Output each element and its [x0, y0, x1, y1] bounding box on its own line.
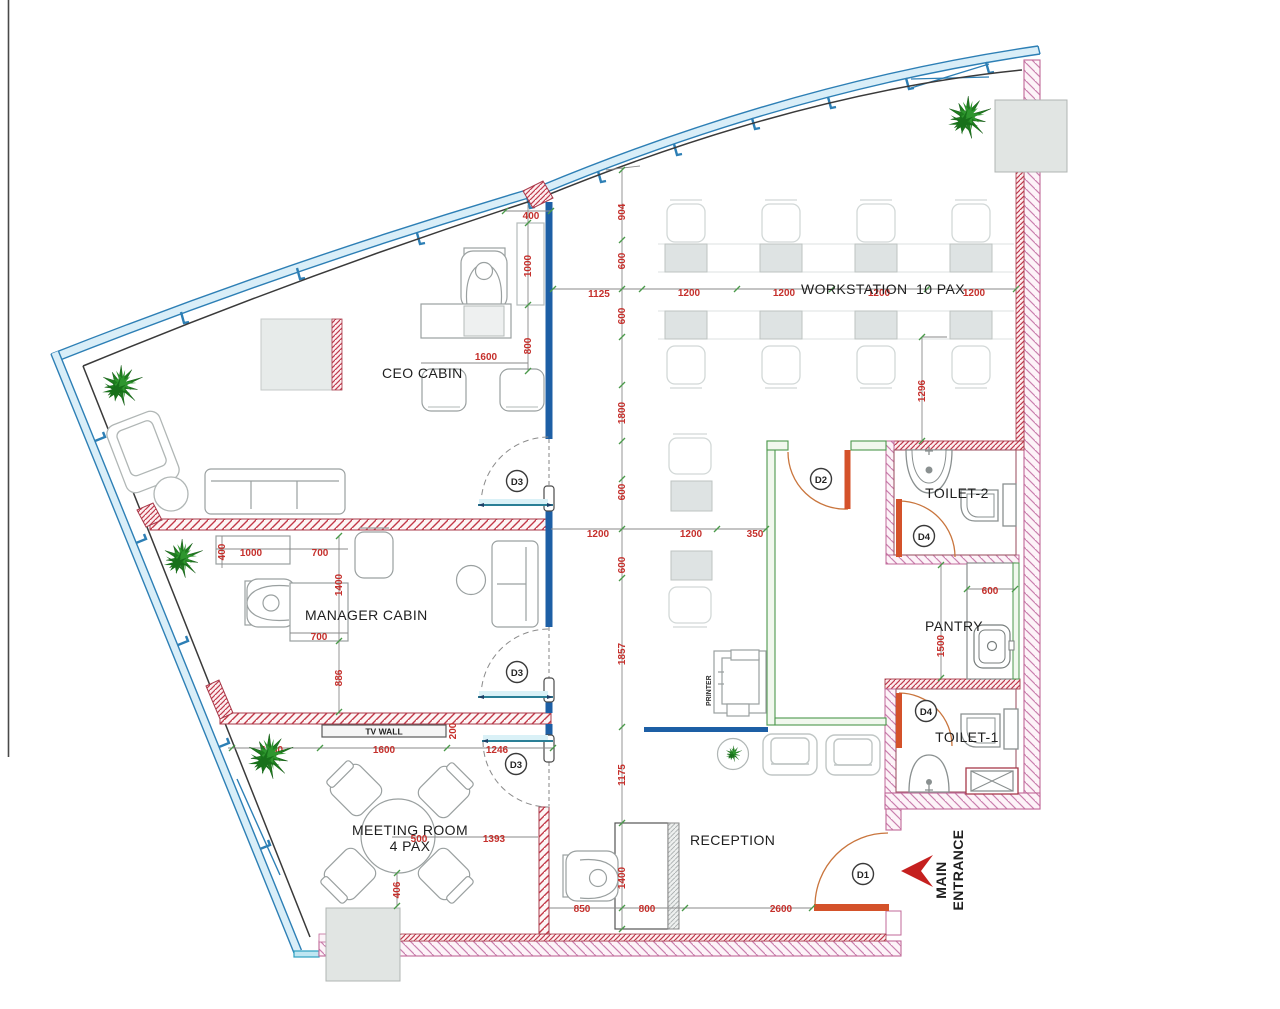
svg-text:1200: 1200: [678, 288, 701, 299]
svg-text:1175: 1175: [617, 764, 628, 786]
svg-text:700: 700: [311, 632, 328, 643]
svg-text:200: 200: [448, 722, 459, 739]
svg-text:1400: 1400: [617, 866, 628, 889]
svg-text:600: 600: [617, 252, 628, 269]
svg-text:600: 600: [617, 556, 628, 573]
svg-text:850: 850: [574, 904, 591, 915]
svg-text:RECEPTION: RECEPTION: [690, 832, 775, 848]
svg-text:D4: D4: [920, 707, 933, 718]
svg-text:1393: 1393: [483, 834, 506, 845]
svg-text:4 PAX: 4 PAX: [390, 838, 431, 854]
svg-text:700: 700: [312, 548, 329, 559]
svg-text:MEETING ROOM: MEETING ROOM: [352, 822, 468, 838]
svg-text:886: 886: [334, 669, 345, 686]
svg-text:MANAGER CABIN: MANAGER CABIN: [305, 607, 428, 623]
svg-text:1000: 1000: [240, 548, 263, 559]
svg-text:D3: D3: [510, 760, 522, 771]
svg-text:1400: 1400: [334, 573, 345, 596]
svg-text:1800: 1800: [617, 401, 628, 424]
svg-text:1000: 1000: [523, 254, 534, 277]
svg-text:800: 800: [639, 904, 656, 915]
svg-text:MAIN: MAIN: [933, 861, 949, 898]
svg-text:1600: 1600: [475, 352, 498, 363]
svg-text:1857: 1857: [617, 642, 628, 665]
svg-text:TOILET-1: TOILET-1: [935, 729, 999, 745]
svg-text:D4: D4: [918, 532, 931, 543]
svg-text:1200: 1200: [963, 288, 986, 299]
svg-text:600: 600: [617, 307, 628, 324]
svg-text:1125: 1125: [588, 289, 610, 300]
svg-text:PRINTER: PRINTER: [706, 675, 713, 706]
svg-text:406: 406: [392, 881, 403, 898]
svg-text:D2: D2: [815, 475, 827, 486]
svg-text:600: 600: [982, 586, 999, 597]
svg-text:ENTRANCE: ENTRANCE: [950, 830, 966, 911]
svg-text:1200: 1200: [773, 288, 796, 299]
svg-text:600: 600: [617, 483, 628, 500]
svg-text:400: 400: [523, 211, 540, 222]
svg-text:D1: D1: [857, 870, 870, 881]
svg-text:D3: D3: [511, 668, 523, 679]
svg-text:904: 904: [617, 203, 628, 220]
svg-text:800: 800: [523, 337, 534, 354]
svg-text:1246: 1246: [486, 745, 509, 756]
svg-text:1600: 1600: [373, 745, 396, 756]
svg-text:PANTRY: PANTRY: [925, 618, 983, 634]
svg-text:TV WALL: TV WALL: [365, 727, 402, 737]
svg-text:TOILET-2: TOILET-2: [925, 485, 989, 501]
svg-text:1200: 1200: [587, 529, 610, 540]
svg-text:350: 350: [747, 529, 764, 540]
svg-text:1296: 1296: [917, 379, 928, 402]
svg-text:1500: 1500: [936, 634, 947, 657]
svg-text:2600: 2600: [770, 904, 793, 915]
svg-text:1200: 1200: [680, 529, 703, 540]
svg-text:CEO CABIN: CEO CABIN: [382, 365, 463, 381]
svg-text:D3: D3: [511, 477, 523, 488]
svg-text:WORKSTATION 10 PAX: WORKSTATION 10 PAX: [801, 281, 965, 297]
svg-text:400: 400: [217, 543, 228, 560]
